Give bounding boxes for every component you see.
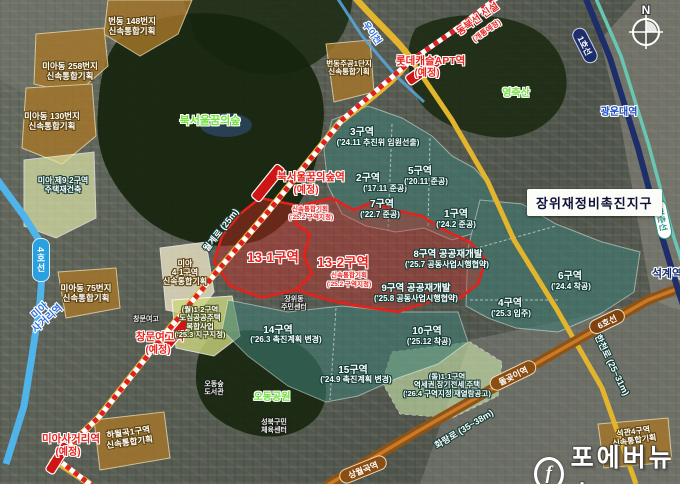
station-label-gwangwoon: 광운대역 (594, 107, 644, 118)
zone-13-note-a1: 신속통합기획 (280, 206, 340, 213)
zone-label-1: 1구역 (432, 209, 480, 220)
fast-track-label-beondong-jugong: 번동주공1단지 신속통합기획 (322, 60, 376, 77)
zone-status-5: ('20.11 준공) (392, 178, 460, 187)
zone-label-6: 6구역 (544, 271, 596, 282)
zone-label-2: 2구역 (344, 173, 392, 184)
park-label-odong: 오동공원 (244, 392, 300, 403)
zone-label-dol-1-1: (돌)1-1구역 역세권 장기전세 주택 ('26.4 구역지정 재열람공고) (386, 373, 508, 398)
zone-label-3: 3구역 (338, 127, 386, 138)
district-title: 장위재정비촉진지구 (527, 189, 662, 216)
zone-status-8: ('25.7 공동사업시행협약) (392, 261, 502, 270)
zone-13-note-b1: 신속통합기획 (312, 272, 386, 279)
zone-status-10: ('25.12 착공) (396, 338, 462, 347)
zone-mia-9-2 (24, 152, 96, 238)
zone-status-9: ('25.8 공동사업시행협약) (358, 295, 474, 304)
planned-station-changmoon-note: (예정) (140, 345, 176, 356)
zone-label-13-1: 13-1구역 (236, 250, 310, 265)
badge-line4: 4호선 (32, 238, 50, 282)
poi-odong-library: 오동숲 도서관 (194, 381, 234, 397)
zone-label-mia-4-1: 미아 4-1구역 신속통합기획 (158, 260, 212, 287)
zone-status-14: ('26.3 촉진계획 변경) (238, 336, 334, 345)
zone-label-7: 7구역 (358, 199, 406, 210)
news-map-graphic: 북서울꿈의숲 영축산 오동공원 월계로 (25m) 한천로 (25~31m) 화… (0, 0, 680, 484)
compass-icon: N (624, 2, 668, 55)
zone-label-13-2: 13-2구역 (306, 255, 380, 270)
planned-station-miasageori-note: (예정) (50, 447, 86, 458)
zone-13-note-a2: ('25.2 구역지정) (284, 214, 338, 221)
station-label-seokgye: 석계역 (648, 268, 680, 280)
zone-status-6: ('24.4 착공) (540, 283, 602, 292)
planned-station-miasageori: 미아사거리역 (38, 434, 104, 446)
zone-status-3: ('24.11 추진위 임원선출) (322, 139, 434, 148)
park-label-bukseoul: 북서울꿈의숲 (170, 115, 250, 127)
zone-label-wol-1-2: (월)1-2구역 도심공공주택 복합사업 ('25.3 지구지정) (166, 306, 234, 340)
zone-label-10: 10구역 (398, 326, 456, 337)
planned-station-bukseoul-note: (예정) (288, 185, 324, 196)
poi-seongbuk-gym: 성북구민 체육센터 (250, 419, 298, 435)
zone-13-note-b2: ('25.2 구역지정) (316, 281, 382, 288)
fast-track-label-mia130: 미아동 130번지 신속통합기획 (22, 112, 82, 131)
fast-track-label-beondong148: 번동 148번지 신속통합기획 (102, 17, 162, 36)
fast-track-label-mia75: 미아동 75번지 신속통합기획 (58, 284, 114, 303)
zone-label-5: 5구역 (396, 166, 444, 177)
fast-track-label-mia258: 미아동 258번지 신속통합기획 (40, 62, 100, 81)
watermark-logo-icon: f (534, 457, 564, 484)
zone-status-4: ('25.3 입주) (480, 310, 542, 319)
poi-jangwi-center: 장위동 주민센터 (274, 296, 314, 312)
zone-label-4: 4구역 (484, 298, 536, 309)
compass-n-letter: N (642, 3, 651, 17)
zone-label-mia-9-2: 미아 제9-2구역 주택재건축 (32, 177, 94, 195)
watermark-brand: 포에버뉴스 (571, 438, 680, 484)
zone-status-7: ('22.7 준공) (348, 211, 412, 220)
news-watermark: f 포에버뉴스 (534, 438, 680, 484)
planned-station-bukseoul: 북서울꿈의숲역 (266, 172, 356, 184)
park-label-yeongchuksan: 영축산 (494, 88, 538, 99)
poi-changmoon-hs: 창문여고 (126, 316, 166, 324)
planned-station-lottecastle: 롯데캐슬APT역 (예정) (396, 56, 458, 79)
zone-status-1: ('24.2 준공) (424, 221, 488, 230)
